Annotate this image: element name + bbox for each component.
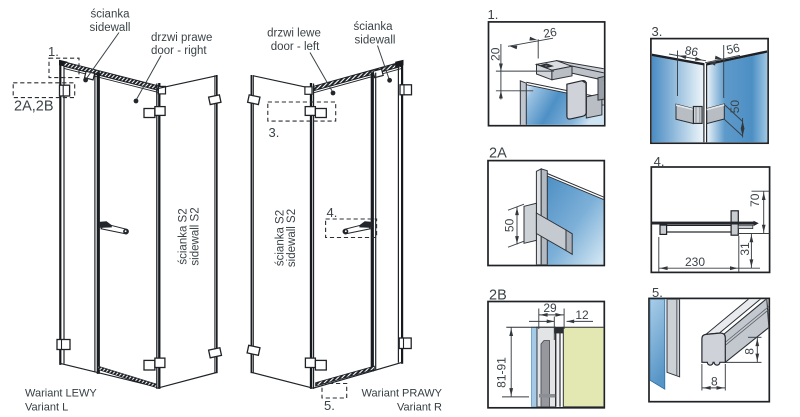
svg-text:sidewall: sidewall	[355, 34, 396, 46]
svg-text:drzwi lewe: drzwi lewe	[267, 28, 321, 40]
svg-text:20: 20	[489, 47, 503, 61]
svg-text:sidewall S2: sidewall S2	[190, 207, 202, 265]
svg-text:3.: 3.	[269, 125, 280, 140]
svg-text:Wariant PRAWY: Wariant PRAWY	[362, 387, 443, 399]
svg-text:1.: 1.	[488, 7, 499, 22]
svg-text:1.: 1.	[48, 44, 59, 59]
svg-text:door - left: door - left	[271, 41, 320, 53]
svg-text:ścianka: ścianka	[91, 9, 131, 21]
svg-text:sidewall: sidewall	[90, 22, 131, 34]
svg-text:ścianka S2: ścianka S2	[178, 208, 190, 264]
svg-text:3.: 3.	[652, 24, 663, 39]
svg-text:5.: 5.	[324, 398, 335, 413]
svg-text:86: 86	[684, 43, 700, 59]
svg-text:drzwi prawe: drzwi prawe	[151, 32, 212, 44]
svg-text:50: 50	[502, 218, 516, 232]
svg-text:Variant L: Variant L	[25, 402, 68, 414]
svg-text:ścianka S2: ścianka S2	[274, 210, 286, 266]
svg-text:8: 8	[742, 348, 756, 355]
svg-text:4.: 4.	[327, 205, 338, 220]
svg-text:2A: 2A	[489, 146, 507, 162]
svg-text:2A,2B: 2A,2B	[14, 99, 54, 115]
svg-text:door - right: door - right	[151, 45, 207, 57]
svg-text:8: 8	[711, 374, 718, 388]
svg-text:sidewall S2: sidewall S2	[286, 209, 298, 267]
svg-text:70: 70	[748, 193, 762, 207]
svg-text:31: 31	[738, 242, 752, 256]
svg-text:81-91: 81-91	[495, 357, 509, 388]
svg-text:26: 26	[542, 25, 558, 41]
svg-text:Variant R: Variant R	[397, 402, 442, 414]
svg-text:29: 29	[543, 301, 557, 315]
svg-text:50: 50	[728, 100, 742, 114]
svg-text:230: 230	[685, 255, 705, 269]
svg-text:12: 12	[575, 308, 589, 322]
svg-text:Wariant LEWY: Wariant LEWY	[25, 387, 97, 399]
svg-text:ścianka: ścianka	[354, 21, 394, 33]
